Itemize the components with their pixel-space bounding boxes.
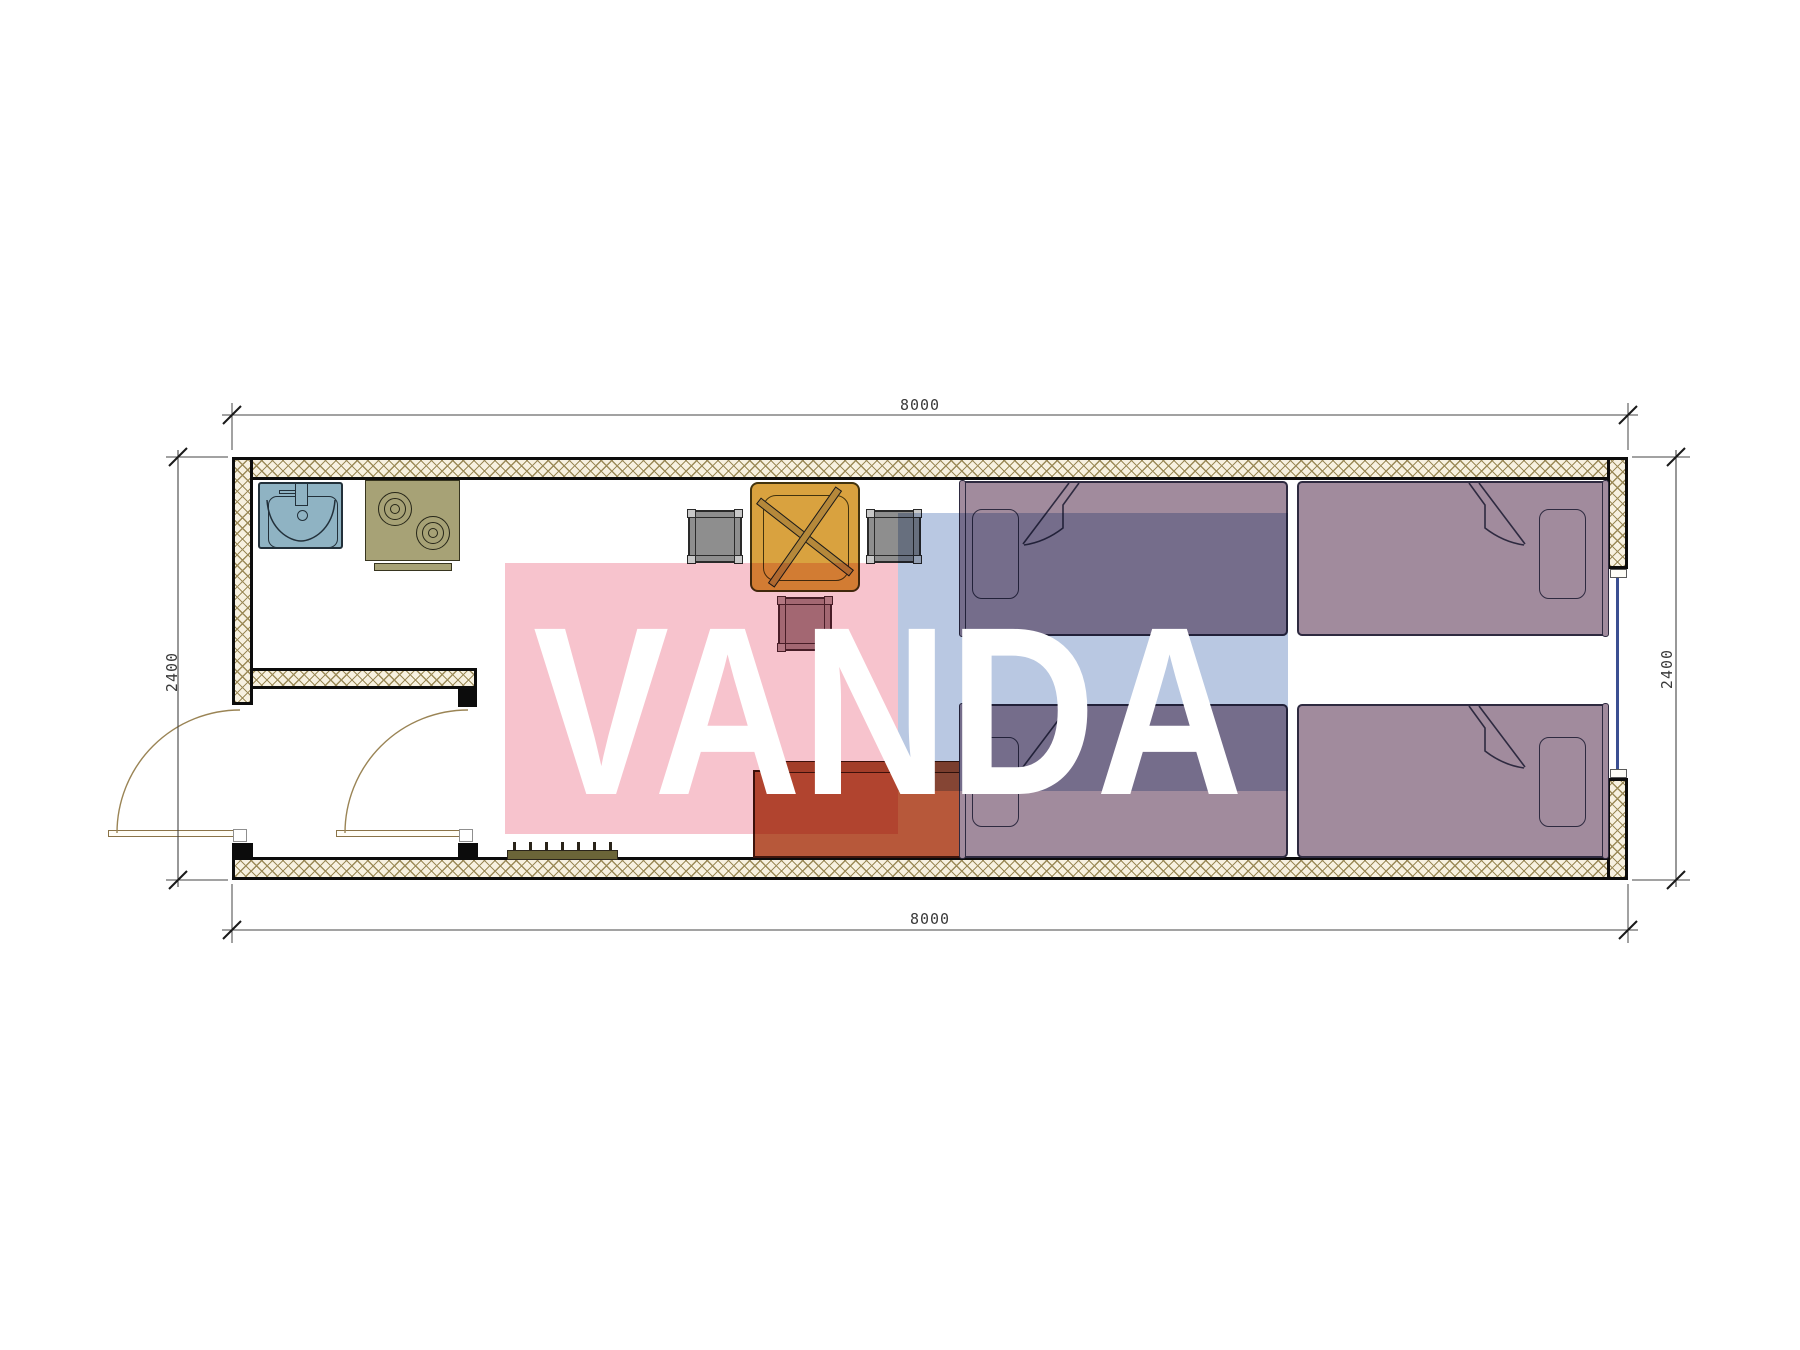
entry-door-hinge	[233, 829, 247, 842]
corner-door-jamb	[232, 843, 253, 859]
dim-label-top: 8000	[870, 396, 970, 414]
vestibule-door-swing-arc	[345, 710, 468, 833]
chair-left	[688, 510, 742, 563]
dim-label-bottom: 8000	[880, 910, 980, 928]
sink-faucet-handle	[279, 490, 296, 494]
stove-pedestal	[374, 563, 452, 571]
interior-wall-vestibule	[248, 668, 477, 689]
vestibule-door-hinge	[459, 829, 473, 842]
window-sill-bottom	[1610, 769, 1627, 778]
left-wall	[232, 457, 253, 705]
bed-headboard	[1602, 480, 1609, 637]
sink-faucet-icon	[295, 483, 308, 506]
window-glazing	[1616, 578, 1619, 769]
floor-plan-canvas: 8000 8000 2400 2400 VANDA	[0, 0, 1800, 1350]
dim-label-right: 2400	[1658, 639, 1676, 699]
watermark-text: VANDA	[533, 591, 1243, 831]
kitchen-sink	[258, 482, 343, 549]
top-wall	[232, 457, 1628, 480]
bed-pillow	[1539, 509, 1586, 599]
right-wall-upper	[1607, 457, 1628, 569]
bed-headboard	[1602, 703, 1609, 859]
shoe-grate	[507, 850, 618, 860]
stove-burner-center	[390, 504, 400, 514]
interior-wall-jamb	[458, 687, 477, 707]
window-sill-top	[1610, 569, 1627, 578]
bed-top-right	[1297, 481, 1607, 636]
stove-burner-center	[428, 528, 438, 538]
bottom-wall	[232, 857, 1628, 880]
right-wall-lower	[1607, 778, 1628, 880]
bed-pillow	[1539, 737, 1586, 827]
bed-bottom-right	[1297, 704, 1607, 858]
vestibule-door-leaf	[336, 830, 468, 837]
two-burner-stove	[365, 480, 460, 561]
entry-door-leaf	[108, 830, 240, 837]
dim-label-left: 2400	[163, 642, 181, 702]
entry-door-swing-arc	[117, 710, 240, 833]
chair-seat	[695, 517, 735, 556]
sink-drain	[297, 510, 308, 521]
vestibule-door-jamb	[458, 843, 478, 859]
